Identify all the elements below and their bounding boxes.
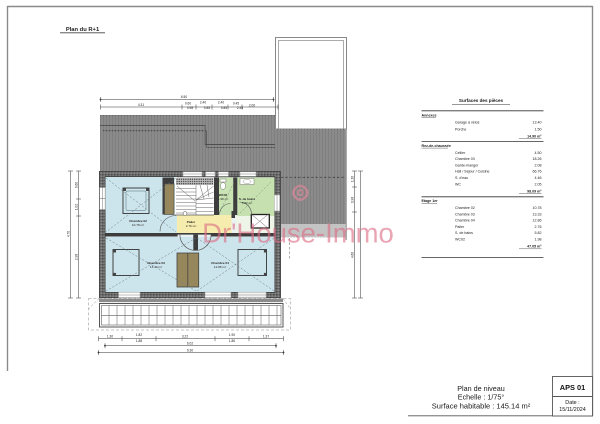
- svg-text:12.86: 12.86: [533, 219, 542, 223]
- svg-text:2.40: 2.40: [218, 101, 224, 105]
- svg-text:1.30: 1.30: [351, 176, 355, 182]
- svg-text:1.86: 1.86: [229, 339, 235, 343]
- svg-text:Chambre 02: Chambre 02: [455, 206, 475, 210]
- svg-text:Plan du R+1: Plan du R+1: [66, 27, 100, 33]
- svg-text:18.26: 18.26: [533, 157, 542, 161]
- svg-text:Garage à vélos: Garage à vélos: [455, 121, 480, 125]
- svg-text:Cellier: Cellier: [455, 151, 466, 155]
- svg-text:WC: WC: [455, 182, 461, 186]
- svg-text:5.82: 5.82: [535, 231, 542, 235]
- svg-text:4.70: 4.70: [67, 231, 71, 237]
- svg-text:4.60: 4.60: [351, 252, 355, 258]
- svg-text:1.98 m²: 1.98 m²: [218, 197, 229, 201]
- svg-text:6.50: 6.50: [181, 95, 187, 99]
- svg-text:Hall / Séjour / Cuisine: Hall / Séjour / Cuisine: [455, 170, 490, 174]
- svg-text:Porche: Porche: [455, 128, 466, 132]
- svg-text:2.45: 2.45: [237, 106, 243, 110]
- svg-text:1.02: 1.02: [75, 204, 79, 210]
- svg-text:Chambre 03: Chambre 03: [455, 157, 475, 161]
- svg-text:10.78 m²: 10.78 m²: [132, 223, 144, 227]
- svg-text:1.90: 1.90: [229, 333, 235, 337]
- svg-text:3.22: 3.22: [182, 335, 188, 339]
- svg-text:Dr'House-Immo: Dr'House-Immo: [202, 218, 394, 249]
- svg-text:1.37: 1.37: [263, 335, 269, 339]
- svg-text:2.40: 2.40: [200, 101, 206, 105]
- svg-text:APS 01: APS 01: [560, 383, 585, 392]
- svg-text:Date :: Date :: [565, 400, 579, 406]
- svg-text:1.30: 1.30: [107, 335, 113, 339]
- svg-text:2.05: 2.05: [535, 182, 542, 186]
- svg-text:14.90 m²: 14.90 m²: [527, 135, 542, 139]
- svg-text:15/11/2024: 15/11/2024: [559, 407, 586, 413]
- svg-text:1.50: 1.50: [535, 128, 542, 132]
- svg-text:Surfaces des pièces: Surfaces des pièces: [459, 98, 504, 103]
- svg-text:2.08: 2.08: [535, 163, 542, 167]
- svg-text:2.00: 2.00: [249, 104, 255, 108]
- svg-text:0.98: 0.98: [187, 106, 193, 110]
- svg-text:98.09 m²: 98.09 m²: [527, 190, 542, 194]
- svg-text:Garde-manger: Garde-manger: [455, 163, 479, 167]
- svg-text:13.40: 13.40: [533, 121, 542, 125]
- svg-text:2.98: 2.98: [75, 254, 79, 260]
- svg-text:Echelle : 1/75°: Echelle : 1/75°: [458, 393, 505, 402]
- svg-text:0.60: 0.60: [75, 182, 79, 188]
- svg-text:47.05 m²: 47.05 m²: [527, 245, 542, 249]
- svg-text:9.30: 9.30: [187, 348, 193, 352]
- svg-text:Rez-de-chaussée: Rez-de-chaussée: [422, 144, 451, 148]
- svg-text:WC02: WC02: [455, 238, 465, 242]
- svg-text:1.82: 1.82: [136, 333, 142, 337]
- svg-text:4.50: 4.50: [535, 151, 542, 155]
- svg-text:1.98: 1.98: [535, 238, 542, 242]
- svg-text:2.76 m²: 2.76 m²: [186, 224, 197, 228]
- svg-text:0.98: 0.98: [351, 197, 355, 203]
- svg-text:Palier: Palier: [455, 225, 465, 229]
- svg-text:66.76: 66.76: [533, 170, 542, 174]
- svg-text:0.45: 0.45: [233, 101, 239, 105]
- svg-text:Chambre 04: Chambre 04: [455, 219, 475, 223]
- svg-text:S. d'eau: S. d'eau: [455, 176, 468, 180]
- svg-text:0.85: 0.85: [221, 106, 227, 110]
- svg-text:13.33: 13.33: [533, 212, 542, 216]
- svg-text:4.31: 4.31: [138, 103, 144, 107]
- svg-text:5.82 m²: 5.82 m²: [242, 201, 253, 205]
- svg-text:13.33 m²: 13.33 m²: [150, 265, 162, 269]
- svg-text:1.88: 1.88: [136, 339, 142, 343]
- svg-text:S. de bains: S. de bains: [455, 231, 473, 235]
- svg-text:12.86 m²: 12.86 m²: [214, 265, 226, 269]
- svg-text:Etage 1er: Etage 1er: [422, 199, 439, 203]
- svg-text:10.78: 10.78: [533, 206, 542, 210]
- svg-text:Annexes: Annexes: [422, 114, 437, 118]
- svg-text:6.02: 6.02: [187, 342, 193, 346]
- svg-text:2.76: 2.76: [535, 225, 542, 229]
- svg-text:0.85: 0.85: [204, 106, 210, 110]
- svg-text:Chambre 03: Chambre 03: [455, 212, 475, 216]
- svg-text:Surface habitable : 145.14 m²: Surface habitable : 145.14 m²: [432, 402, 531, 411]
- svg-text:4.46: 4.46: [535, 176, 542, 180]
- svg-text:0.60: 0.60: [185, 101, 191, 105]
